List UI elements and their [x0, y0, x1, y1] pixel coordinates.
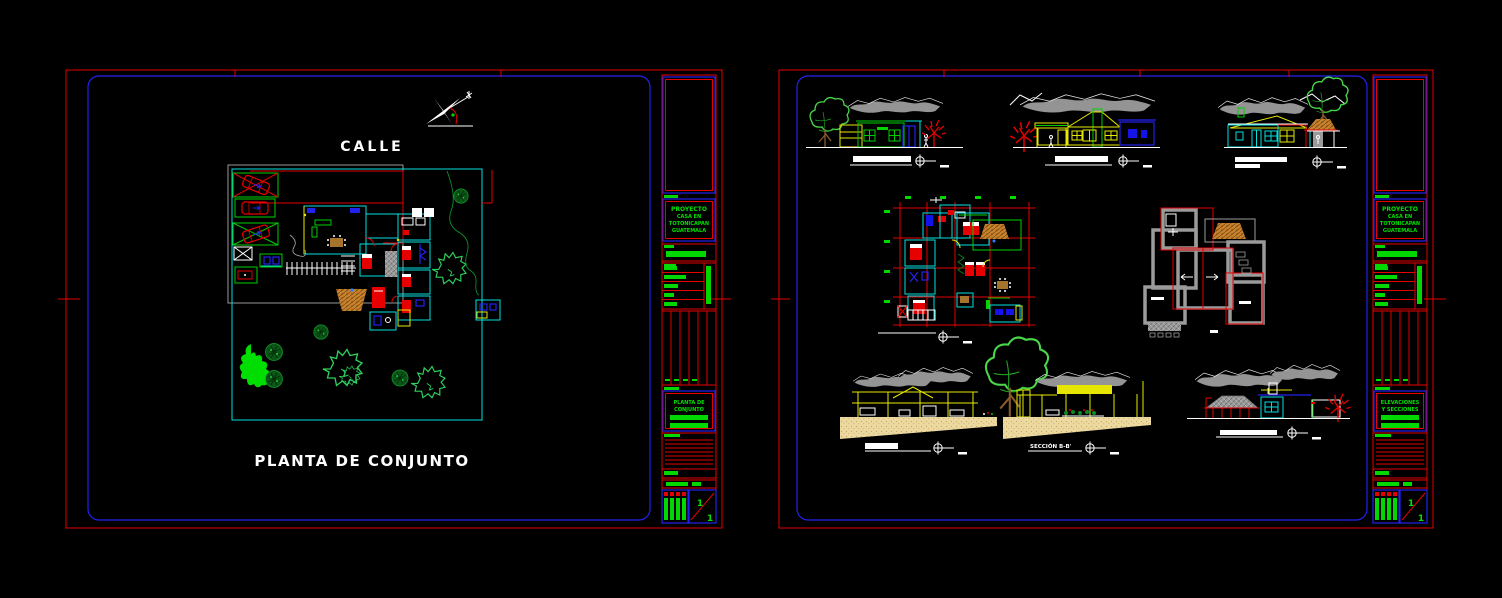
elevation-rear [1218, 77, 1348, 168]
north-arrow-icon [426, 91, 473, 126]
elevation-label [1216, 427, 1321, 440]
person-figure [924, 135, 928, 148]
floor-plan-color [878, 196, 1035, 344]
drawing-title-line: CONJUNTO [674, 407, 704, 413]
notes-block [662, 433, 716, 478]
pergola [286, 262, 356, 275]
cad-drawing: CALLE [0, 0, 1502, 598]
notes-block [1373, 433, 1427, 478]
project-line: PROYECTO [671, 206, 707, 213]
site-plan [228, 165, 500, 420]
roof-patch [1212, 223, 1246, 239]
column-table [662, 311, 716, 385]
tree-icon [266, 344, 283, 361]
plan-dimension [878, 331, 972, 344]
tree-icon [454, 189, 468, 203]
revision-table [662, 263, 716, 309]
sheet-number: 1 [1418, 514, 1424, 524]
elevation-label [1045, 155, 1152, 168]
deck [336, 289, 367, 311]
street-label: CALLE [340, 139, 404, 155]
title-block: PROYECTO CASA EN TOTONICAPAN GUATEMALA [662, 75, 716, 524]
tree-icon [266, 371, 283, 388]
elevation-front [806, 98, 963, 168]
elevation-west [1187, 365, 1351, 440]
elevation-side [1010, 93, 1160, 168]
drawing-title-line: PLANTA DE [673, 400, 705, 406]
project-line: TOTONICAPAN [669, 221, 709, 227]
project-line: CASA EN [1388, 214, 1412, 220]
section-a [840, 368, 997, 455]
sheet-number-box: 1 1 [689, 490, 716, 524]
arrow-right [1206, 274, 1218, 280]
tree-icon [411, 367, 445, 398]
drawing-title-line: Y SECCIONES [1380, 407, 1418, 413]
cloud-icon [1020, 94, 1155, 113]
tree-icon [314, 325, 328, 339]
logo-box [1374, 77, 1426, 193]
project-line: TOTONICAPAN [1380, 221, 1420, 227]
right-sheet: SECCIÓN B-B' [771, 70, 1446, 528]
tree-icon [392, 370, 408, 386]
cloud-icon [848, 98, 943, 113]
column-table [1373, 311, 1427, 385]
tree-icon [339, 366, 360, 385]
revision-table [1373, 263, 1427, 309]
tree-icon [432, 253, 466, 284]
project-line: GUATEMALA [672, 228, 706, 234]
logo-box [663, 77, 715, 193]
project-line: GUATEMALA [1383, 228, 1417, 234]
roof-patch [980, 224, 1009, 239]
cad-workspace: CALLE [0, 0, 1502, 598]
cloud-icon [1218, 98, 1308, 115]
right-sheet-frame [771, 70, 1446, 528]
arrow-left [1181, 274, 1193, 280]
project-text-box: PROYECTO CASA EN TOTONICAPAN GUATEMALA [1374, 199, 1426, 241]
portico-roof [1307, 119, 1336, 130]
driveway [250, 170, 492, 243]
section-label: SECCIÓN B-B' [1028, 442, 1119, 455]
sheet-title: PLANTA DE CONJUNTO [254, 452, 469, 470]
elevation-label [1235, 156, 1346, 169]
left-sheet: CALLE [58, 70, 731, 528]
section-b: SECCIÓN B-B' [986, 337, 1151, 454]
elevation-label [850, 155, 949, 168]
project-line: CASA EN [677, 214, 701, 220]
red-tree-icon [1325, 394, 1350, 422]
sheet-number-box: 1 1 [1400, 490, 1427, 524]
tree-icon [810, 98, 849, 147]
drawing-title-line: ELEVACIONES [1381, 400, 1420, 406]
terrain [840, 417, 997, 439]
sheet-number: 1 [707, 514, 713, 524]
project-text-box: PROYECTO CASA EN TOTONICAPAN GUATEMALA [663, 199, 715, 241]
section-label-text: SECCIÓN B-B' [1030, 443, 1072, 450]
terrain [1003, 417, 1151, 439]
portico-roof [1206, 396, 1258, 408]
drawing-title-box: ELEVACIONES Y SECCIONES [1374, 391, 1426, 431]
cloud-icon [1035, 372, 1130, 387]
garage [233, 173, 278, 245]
cloud-icon [1270, 365, 1340, 380]
cloud-icon [898, 368, 973, 383]
title-block: PROYECTO CASA EN TOTONICAPAN GUATEMALA [1373, 75, 1427, 524]
garden-trees [240, 171, 479, 398]
floor-plan-gray [1145, 208, 1264, 337]
project-line: PROYECTO [1382, 206, 1418, 213]
tree-icon [323, 350, 362, 386]
section-label [865, 442, 967, 455]
drawing-title-box: PLANTA DE CONJUNTO [663, 391, 715, 431]
